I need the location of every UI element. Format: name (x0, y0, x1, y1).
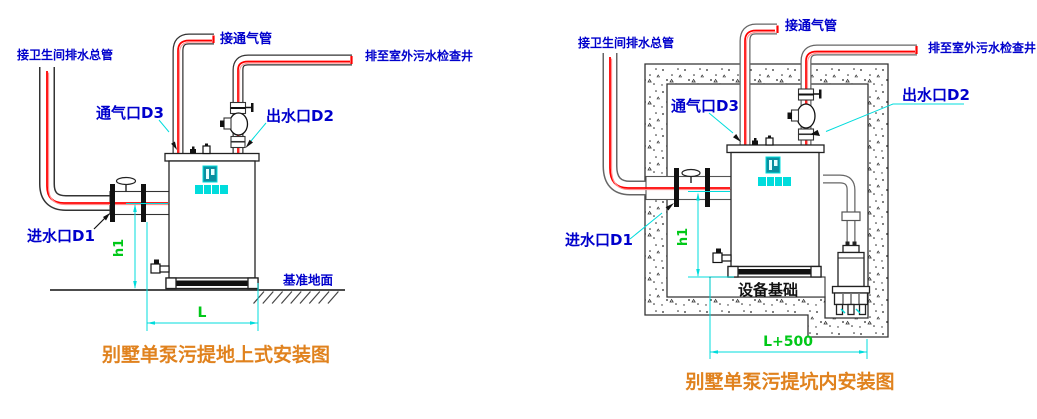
vent-connect-label: 接通气管 (220, 31, 272, 47)
toilet-main-label: 接卫生间排水总管 (578, 35, 674, 50)
dimension-L500-label: L+500 (763, 334, 813, 350)
right-diagram-title: 别墅单泵污提坑内安装图 (684, 370, 894, 393)
outlet-port-leader (246, 123, 267, 148)
dimension-h1-label: h1 (676, 228, 691, 246)
left-diagram-title: 别墅单泵污提地上式安装图 (101, 343, 330, 366)
dimension-h1-label: h1 (112, 239, 127, 257)
ground-hatch (254, 292, 339, 304)
lid-fittings (190, 144, 210, 154)
outlet-port-label: 出水口D2 (266, 107, 334, 125)
pump-discharge-pipe (823, 179, 860, 246)
inlet-port-label: 进水口D1 (27, 227, 95, 245)
check-valve (220, 103, 254, 148)
submersible-pump (833, 242, 870, 315)
vent-port-label: 通气口D3 (671, 97, 739, 115)
outdoor-well-label: 排至室外污水检查井 (928, 40, 1036, 55)
outlet-pipe (806, 46, 917, 148)
ground-label: 基准地面 (282, 273, 334, 288)
above-ground-diagram: h1 L 接卫生间排水总管 接通气管 排至室外污水检查井 通气口D3 出水口D2… (17, 31, 473, 366)
valve-handle (251, 103, 254, 112)
outdoor-well-label: 排至室外污水检查井 (365, 48, 473, 63)
tank-base (166, 278, 258, 289)
vent-port-leader (709, 113, 741, 142)
toilet-drain-pipe (610, 53, 650, 188)
tank-base (728, 267, 821, 278)
dimension-L-label: L (198, 305, 207, 321)
dimension-h1: h1 (112, 204, 168, 290)
sewage-tank (713, 136, 824, 278)
inlet-valve (117, 178, 136, 192)
outlet-port-label: 出水口D2 (902, 86, 970, 104)
foundation-label: 设备基础 (738, 281, 798, 299)
inlet-port-leader (94, 213, 110, 229)
pipe-coupling (842, 212, 860, 221)
inlet-port-label: 进水口D1 (565, 231, 633, 249)
in-pit-diagram: h1 L+500 接卫生间排水总管 接通气管 排至室外污水检查井 通气口D3 出… (565, 18, 1036, 393)
installation-drawing: h1 L 接卫生间排水总管 接通气管 排至室外污水检查井 通气口D3 出水口D2… (0, 0, 1037, 419)
lid-fittings (752, 136, 773, 146)
sewage-tank (151, 144, 259, 289)
toilet-drain-pipe (47, 67, 112, 203)
vent-connect-label: 接通气管 (785, 18, 837, 34)
drain-valve (151, 260, 169, 274)
vent-pipe (178, 36, 214, 158)
inlet-flange (705, 168, 710, 207)
tank-lid (727, 145, 824, 153)
inlet-flange (110, 184, 115, 222)
vent-pipe (745, 26, 778, 149)
inlet-flange (674, 168, 679, 207)
drain-valve (713, 249, 731, 263)
toilet-main-label: 接卫生间排水总管 (17, 47, 113, 62)
tank-lid (165, 154, 259, 162)
vent-port-label: 通气口D3 (96, 104, 164, 122)
ground-line (50, 290, 345, 304)
valve-handle (819, 90, 822, 99)
